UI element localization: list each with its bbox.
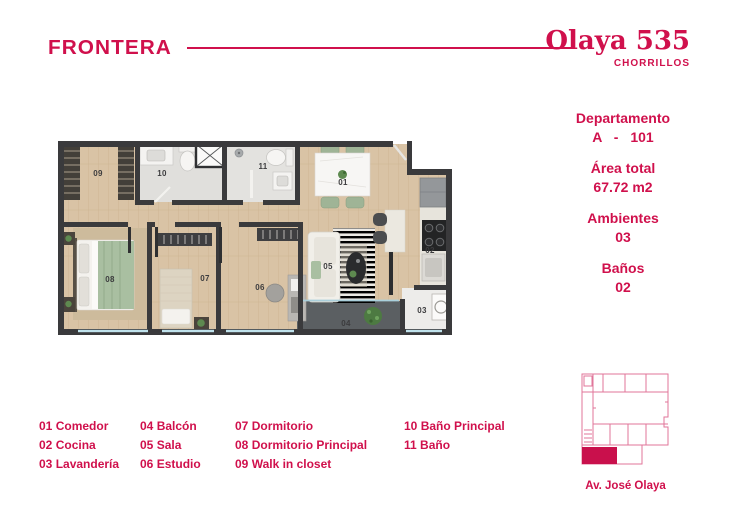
legend-column-2: 04 Balcón 05 Sala 06 Estudio xyxy=(140,417,201,474)
info-unit: Departamento A - 101 xyxy=(548,109,698,147)
room-label-07: 07 xyxy=(200,274,210,283)
room-label-06: 06 xyxy=(255,283,265,292)
unit-info-panel: Departamento A - 101 Área total 67.72 m2… xyxy=(548,109,698,309)
tv-console xyxy=(389,252,393,295)
legend-column-3: 07 Dormitorio 08 Dormitorio Principal 09… xyxy=(235,417,367,474)
legend-item: 07 Dormitorio xyxy=(235,417,367,436)
room-label-04: 04 xyxy=(341,319,351,328)
legend-item: 09 Walk in closet xyxy=(235,455,367,474)
legend-item: 11 Baño xyxy=(404,436,505,455)
room-label-01: 01 xyxy=(338,178,348,187)
room-label-09: 09 xyxy=(93,169,103,178)
room-label-02: 02 xyxy=(425,246,435,255)
legend-item: 04 Balcón xyxy=(140,417,201,436)
highlighted-unit xyxy=(582,447,617,464)
info-rooms-label: Ambientes xyxy=(548,209,698,228)
brochure-page: FRONTERA Olaya 535 CHORRILLOS Departamen… xyxy=(0,0,730,515)
legend-item: 06 Estudio xyxy=(140,455,201,474)
info-area-label: Área total xyxy=(548,159,698,178)
info-rooms-value: 03 xyxy=(548,228,698,247)
room-label-05: 05 xyxy=(323,262,333,271)
room-label-11: 11 xyxy=(258,162,267,171)
room-label-03: 03 xyxy=(417,306,427,315)
project-title-block: Olaya 535 CHORRILLOS xyxy=(545,28,690,69)
info-area-value: 67.72 m2 xyxy=(548,178,698,197)
info-unit-value: A - 101 xyxy=(548,128,698,147)
info-unit-label: Departamento xyxy=(548,109,698,128)
legend-column-4: 10 Baño Principal 11 Baño xyxy=(404,417,505,455)
info-baths: Baños 02 xyxy=(548,259,698,297)
project-name: Olaya 535 xyxy=(545,28,690,55)
coffee-table xyxy=(346,252,366,284)
legend-item: 10 Baño Principal xyxy=(404,417,505,436)
kitchen-appliances xyxy=(420,178,446,281)
info-rooms: Ambientes 03 xyxy=(548,209,698,247)
legend-item: 02 Cocina xyxy=(39,436,119,455)
legend-item: 01 Comedor xyxy=(39,417,119,436)
info-baths-label: Baños xyxy=(548,259,698,278)
legend-item: 08 Dormitorio Principal xyxy=(235,436,367,455)
room-label-10: 10 xyxy=(157,169,167,178)
location-map xyxy=(580,372,688,468)
floor-plan: 01 02 03 04 05 06 07 08 09 10 11 xyxy=(58,141,452,335)
header-rule xyxy=(187,47,575,49)
legend-item: 03 Lavandería xyxy=(39,455,119,474)
info-area: Área total 67.72 m2 xyxy=(548,159,698,197)
project-location: CHORRILLOS xyxy=(545,58,690,69)
room-label-08: 08 xyxy=(105,275,115,284)
frontera-logo: FRONTERA xyxy=(48,37,172,60)
legend-column-1: 01 Comedor 02 Cocina 03 Lavandería xyxy=(39,417,119,474)
street-label: Av. José Olaya xyxy=(568,480,683,492)
info-baths-value: 02 xyxy=(548,278,698,297)
legend-item: 05 Sala xyxy=(140,436,201,455)
